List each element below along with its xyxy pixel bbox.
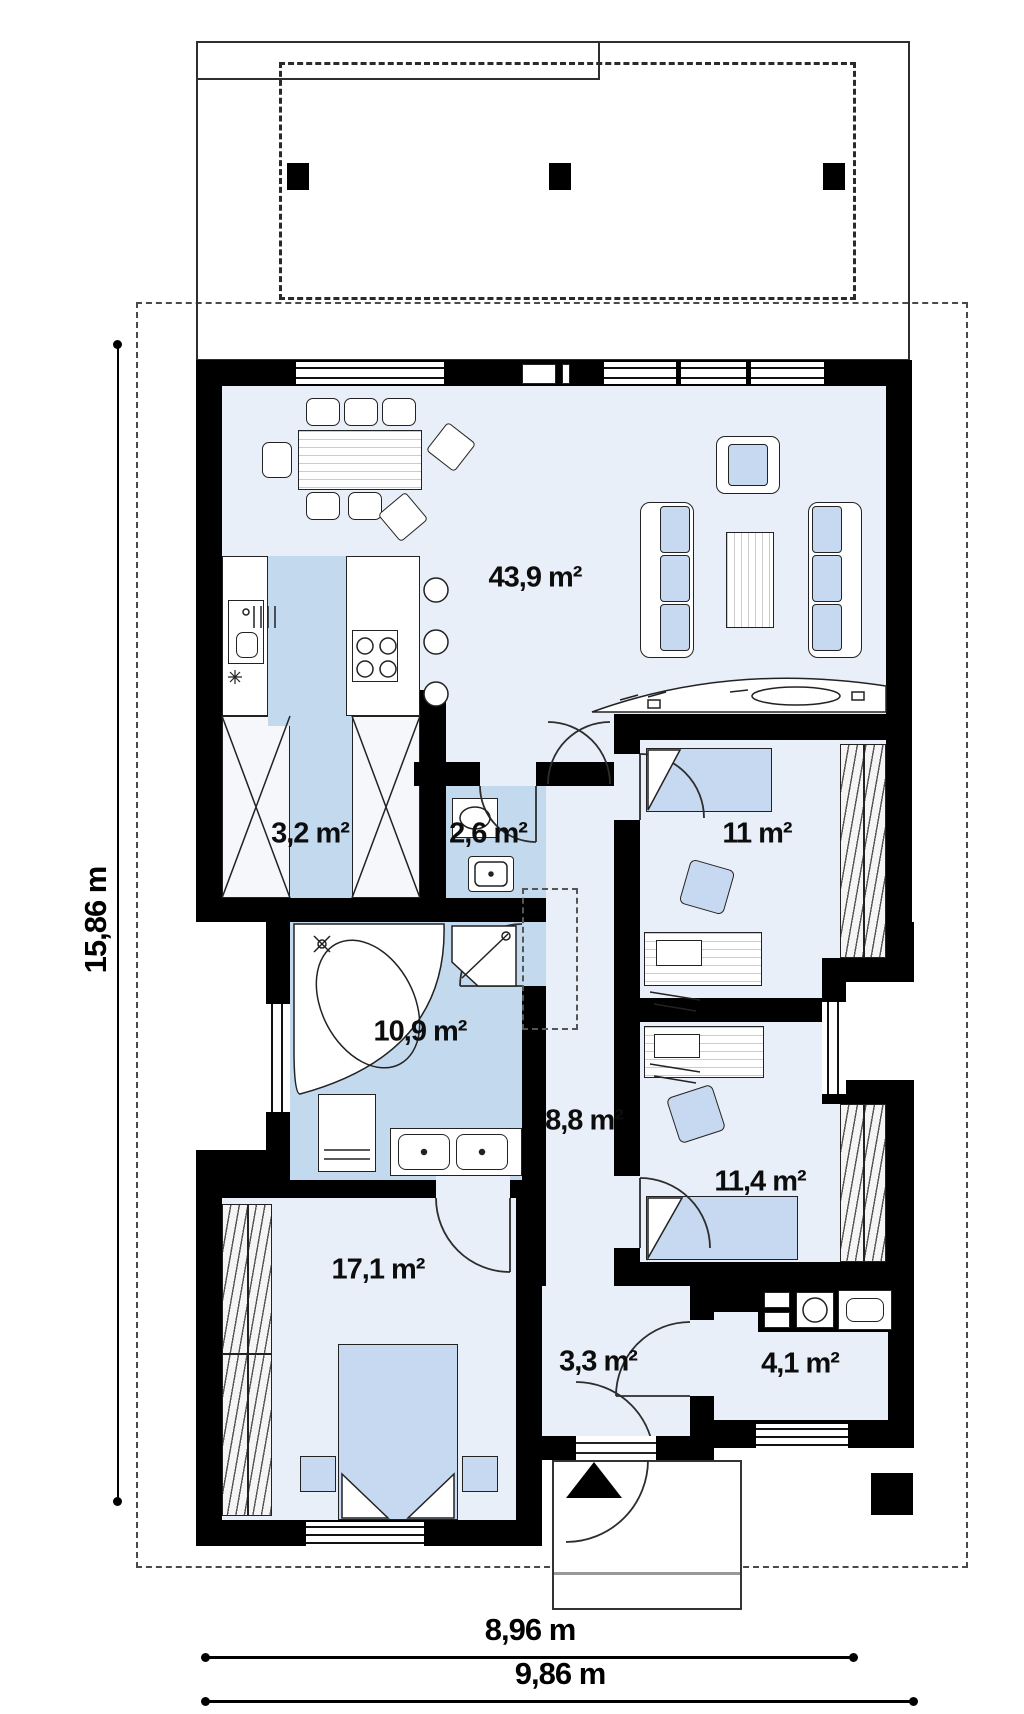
dimension-label-inner: 8,96 m <box>485 1612 576 1648</box>
attic-hatch-dashed <box>522 888 578 1030</box>
shelf-icon <box>764 1312 790 1328</box>
chair <box>344 398 378 426</box>
dimension-dot <box>849 1653 858 1662</box>
dimension-label-outer: 9,86 m <box>515 1656 606 1692</box>
terrace-post-icon <box>287 163 309 190</box>
window <box>604 362 824 384</box>
closet <box>222 716 290 898</box>
shelf-icon <box>764 1292 790 1308</box>
chair <box>306 492 340 520</box>
door-opening <box>690 1320 714 1396</box>
terrace-post-icon <box>823 163 845 190</box>
dimension-line-left <box>117 344 119 1502</box>
chair <box>306 398 340 426</box>
vanity-basin <box>456 1134 508 1170</box>
nightstand <box>300 1456 336 1492</box>
nightstand <box>462 1456 498 1492</box>
kitchen-sink-basin <box>236 632 258 658</box>
room-label-living: 43,9 m² <box>489 562 582 595</box>
stove-flue-icon <box>522 364 556 384</box>
wall <box>536 762 546 786</box>
entry-porch <box>552 1460 742 1610</box>
single-bed <box>646 748 772 812</box>
hall-floor <box>546 786 614 1286</box>
dimension-dot <box>201 1697 210 1706</box>
room-label-bedroom-left: 17,1 m² <box>332 1254 425 1287</box>
wall <box>420 716 446 898</box>
chair <box>382 398 416 426</box>
dining-table <box>298 430 422 490</box>
room-label-entry: 3,3 m² <box>559 1346 637 1379</box>
terrace-post-icon <box>549 163 571 190</box>
room-label-hall: 8,8 m² <box>545 1105 623 1138</box>
door-opening <box>614 754 640 820</box>
washing-machine <box>318 1094 376 1172</box>
front-door-threshold <box>576 1436 656 1460</box>
room-label-bedroom-right: 11,4 m² <box>714 1166 805 1199</box>
window-mullion <box>676 362 681 384</box>
window <box>296 362 444 384</box>
wardrobe-cabinet <box>222 1204 272 1516</box>
window <box>306 1522 424 1548</box>
dimension-label-left: 15,86 m <box>78 867 114 974</box>
laundry-sink-basin <box>846 1298 884 1322</box>
single-bed <box>646 1196 798 1260</box>
chair <box>348 492 382 520</box>
wardrobe-divider <box>223 1353 271 1355</box>
dimension-dot <box>201 1653 210 1662</box>
sofa-cushion <box>660 604 690 651</box>
wardrobe-cabinet <box>840 744 886 958</box>
wardrobe-cabinet <box>840 1104 886 1262</box>
toilet <box>468 856 514 892</box>
dimension-line-outer <box>205 1700 915 1703</box>
cooktop <box>352 630 398 682</box>
porch-step-line <box>554 1572 740 1575</box>
sofa-cushion <box>660 506 690 553</box>
washer-icon <box>796 1292 834 1328</box>
laptop <box>656 940 702 966</box>
sofa-cushion <box>812 604 842 651</box>
window <box>822 1002 846 1094</box>
double-bed <box>338 1344 458 1520</box>
room-label-wc: 2,6 m² <box>449 818 527 851</box>
kitchen-floor-strip <box>268 556 346 726</box>
armchair-cushion <box>728 444 768 486</box>
vanity-basin <box>398 1134 450 1170</box>
wall <box>414 762 480 786</box>
dimension-dot <box>113 1497 122 1506</box>
wall <box>886 922 914 982</box>
coffee-table <box>726 532 774 628</box>
corner-post-icon <box>871 1473 913 1515</box>
stove-flue-icon <box>562 364 570 384</box>
room-label-wardrobe: 3,2 m² <box>271 818 349 851</box>
door-opening <box>614 1176 640 1248</box>
dimension-dot <box>909 1697 918 1706</box>
living-corridor-floor <box>446 714 614 762</box>
sofa-cushion <box>660 555 690 602</box>
window-mullion <box>746 362 751 384</box>
floor-plan: 43,9 m² 3,2 m² 2,6 m² 11 m² 10,9 m² 8,8 … <box>0 0 1024 1714</box>
room-label-bedroom-top: 11 m² <box>722 818 791 851</box>
room-label-bathroom: 10,9 m² <box>374 1016 467 1049</box>
room-label-utility: 4,1 m² <box>761 1348 839 1381</box>
window <box>756 1424 848 1448</box>
door-opening <box>480 762 536 786</box>
laptop <box>654 1034 700 1058</box>
window <box>266 1004 290 1112</box>
sofa-cushion <box>812 555 842 602</box>
closet <box>352 716 420 898</box>
sofa-cushion <box>812 506 842 553</box>
dimension-dot <box>113 340 122 349</box>
chair <box>262 442 292 478</box>
